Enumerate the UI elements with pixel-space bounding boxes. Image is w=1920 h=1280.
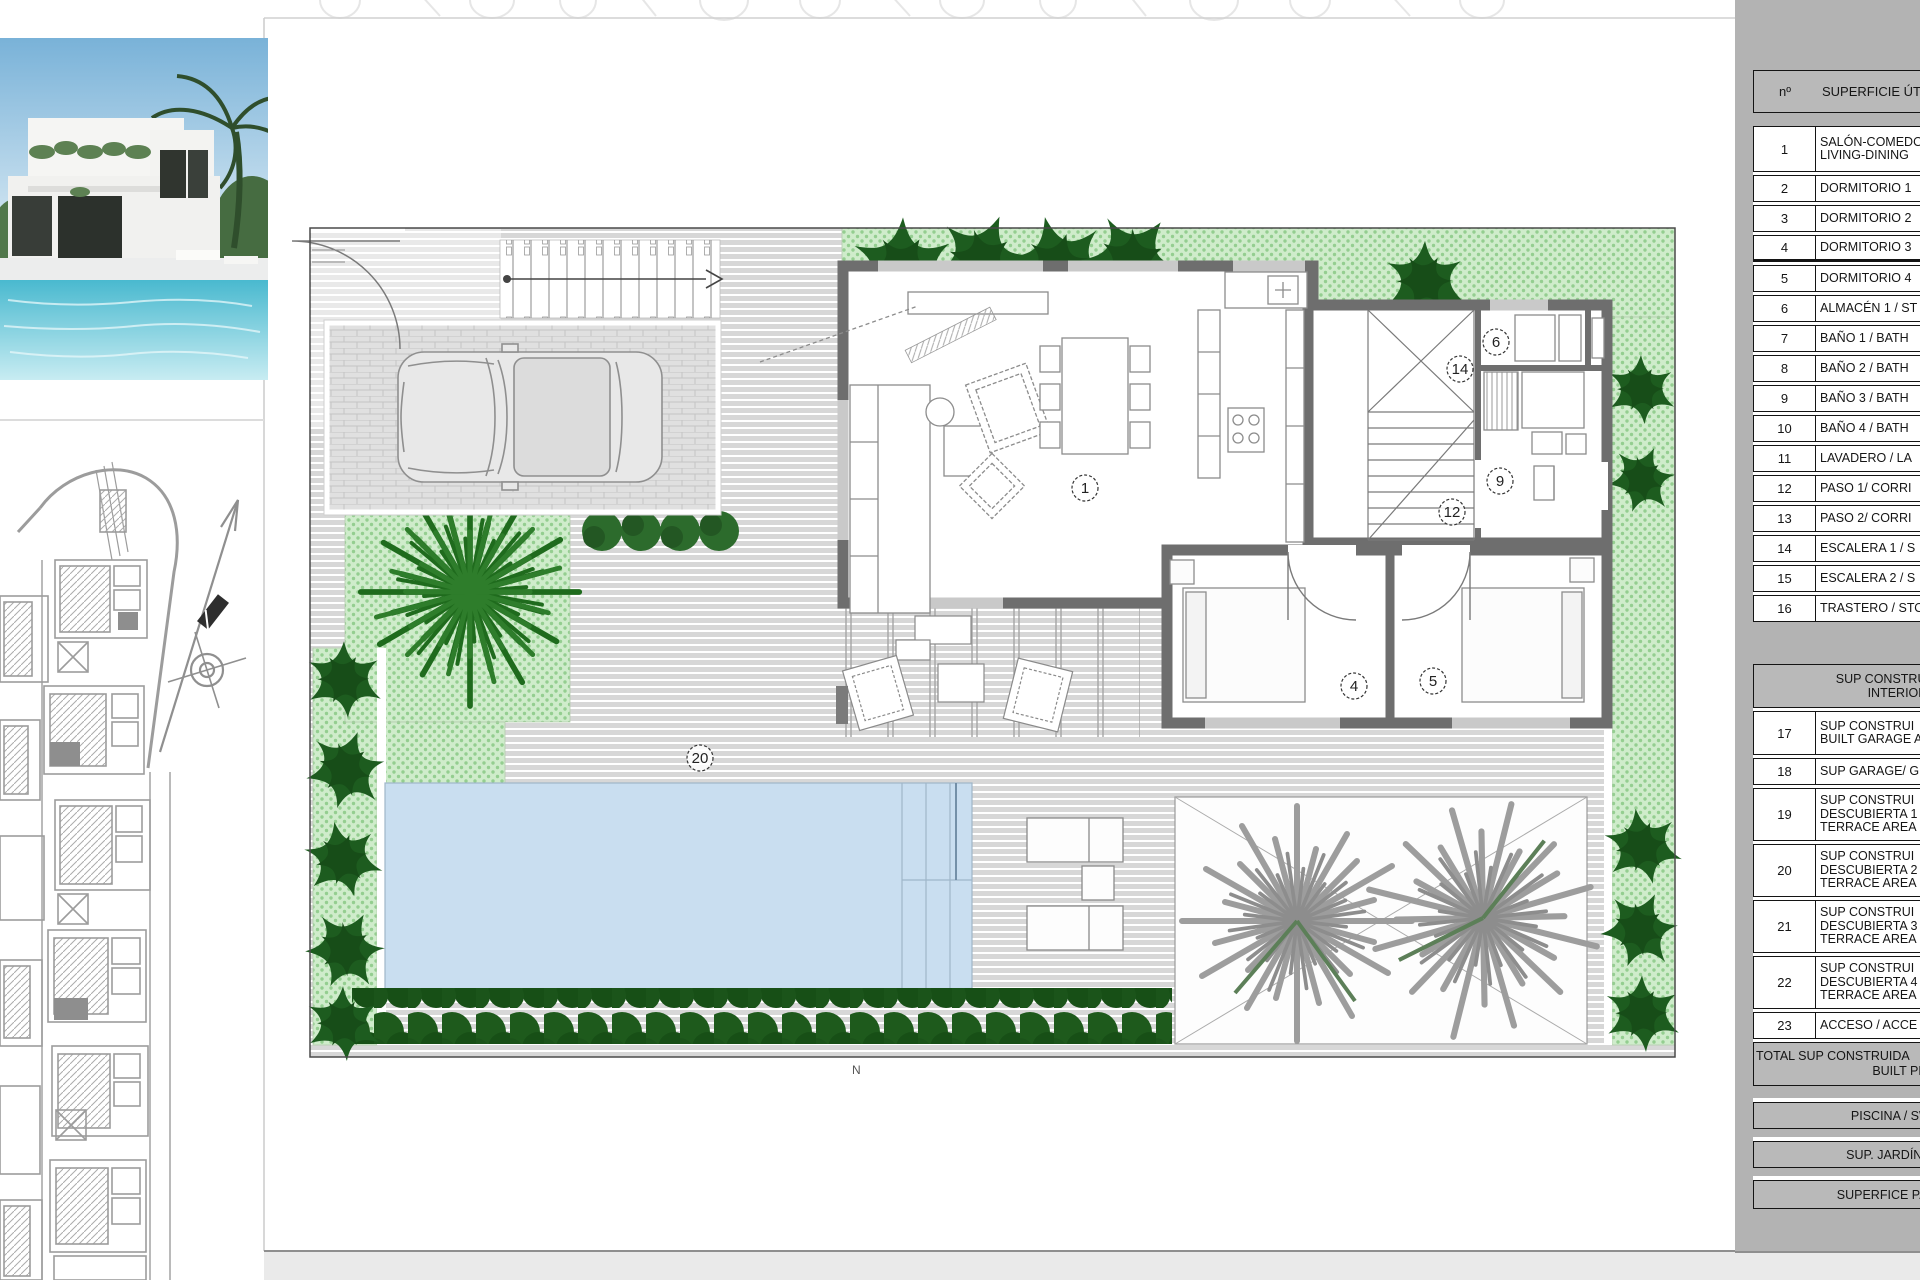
room-label-9: 9 xyxy=(1496,473,1504,490)
site-plan xyxy=(0,462,177,1280)
table-row: 22 SUP CONSTRUIDESCUBIERTA 4TERRACE AREA xyxy=(1753,956,1920,1009)
table-row: 15 ESCALERA 2 / S xyxy=(1753,565,1920,592)
villa-photo xyxy=(0,38,296,380)
table-row: 1 SALÓN-COMEDOLIVING-DINING xyxy=(1753,126,1920,172)
table-row: 17 SUP CONSTRUIBUILT GARAGE A xyxy=(1753,711,1920,755)
table-row: 14 ESCALERA 1 / S xyxy=(1753,535,1920,562)
table-row: 3 DORMITORIO 2 xyxy=(1753,205,1920,232)
table-row: 9 BAÑO 3 / BATH xyxy=(1753,385,1920,412)
header-label: SUPERFICIE ÚTIL xyxy=(1816,84,1920,99)
room-label-1: 1 xyxy=(1081,480,1089,497)
sheet-footer-mark: N xyxy=(852,1063,861,1077)
parcel-area-row: SUPERFICE PARCELA xyxy=(1753,1180,1920,1209)
header-num: nº xyxy=(1754,84,1816,99)
table-row: 4 DORMITORIO 3 xyxy=(1753,235,1920,262)
room-label-4: 4 xyxy=(1350,678,1358,695)
area-table-header: nº SUPERFICIE ÚTIL xyxy=(1753,70,1920,113)
table-row: 16 TRASTERO / STO xyxy=(1753,595,1920,622)
floor-plan: 1 4 5 6 9 12 14 20 N xyxy=(290,196,1689,1077)
table-row: 6 ALMACÉN 1 / ST xyxy=(1753,295,1920,322)
table-row: 12 PASO 1/ CORRI xyxy=(1753,475,1920,502)
total-row: TOTAL SUP CONSTRUIDA BUILT PRIVATE xyxy=(1753,1042,1920,1086)
room-label-20: 20 xyxy=(692,750,709,767)
table-row: 13 PASO 2/ CORRI xyxy=(1753,505,1920,532)
watermark-glyphs xyxy=(320,0,1504,20)
carport xyxy=(324,320,721,515)
table-row: 7 BAÑO 1 / BATH xyxy=(1753,325,1920,352)
table-row: 21 SUP CONSTRUIDESCUBIERTA 3TERRACE AREA xyxy=(1753,900,1920,953)
dining-set xyxy=(1040,338,1150,454)
table-row: 2 DORMITORIO 1 xyxy=(1753,175,1920,202)
swimming-pool xyxy=(385,783,972,997)
table-row: 19 SUP CONSTRUIDESCUBIERTA 1TERRACE AREA xyxy=(1753,788,1920,841)
room-label-12: 12 xyxy=(1444,504,1461,521)
hedge-row xyxy=(352,988,1172,1044)
architectural-plan-page: { "panel": { "header": { "num": "nº", "l… xyxy=(0,0,1920,1280)
room-label-6: 6 xyxy=(1492,334,1500,351)
north-arrow-icon xyxy=(160,500,246,752)
garden-area-row: SUP. JARDÍN / GAR xyxy=(1753,1141,1920,1168)
area-rows-2: SUP CONSTRUIDA INTINTERIOR A 17 SUP CONS… xyxy=(1753,664,1920,1086)
area-rows-1: 1 SALÓN-COMEDOLIVING-DINING 2 DORMITORIO… xyxy=(1753,126,1920,622)
section-header: SUP CONSTRUIDA INTINTERIOR A xyxy=(1753,664,1920,708)
room-label-14: 14 xyxy=(1452,361,1469,378)
table-row: 20 SUP CONSTRUIDESCUBIERTA 2TERRACE AREA xyxy=(1753,844,1920,897)
pool-area-row: PISCINA / SWIMM xyxy=(1753,1102,1920,1129)
area-table-panel: nº SUPERFICIE ÚTIL 1 SALÓN-COMEDOLIVING-… xyxy=(1735,0,1920,1253)
table-row: 23 ACCESO / ACCE xyxy=(1753,1012,1920,1039)
table-row: 8 BAÑO 2 / BATH xyxy=(1753,355,1920,382)
sand-terrace xyxy=(1175,776,1625,1065)
table-row: 5 DORMITORIO 4 xyxy=(1753,265,1920,292)
room-label-5: 5 xyxy=(1429,673,1437,690)
table-row: 11 LAVADERO / LA xyxy=(1753,445,1920,472)
table-row: 10 BAÑO 4 / BATH xyxy=(1753,415,1920,442)
table-row: 18 SUP GARAGE/ G xyxy=(1753,758,1920,785)
car-topview xyxy=(398,344,662,490)
entry-ramp xyxy=(500,240,722,318)
area-table: nº SUPERFICIE ÚTIL 1 SALÓN-COMEDOLIVING-… xyxy=(1753,70,1920,1209)
drawing-sheet: 1 4 5 6 9 12 14 20 N xyxy=(0,0,1920,1280)
